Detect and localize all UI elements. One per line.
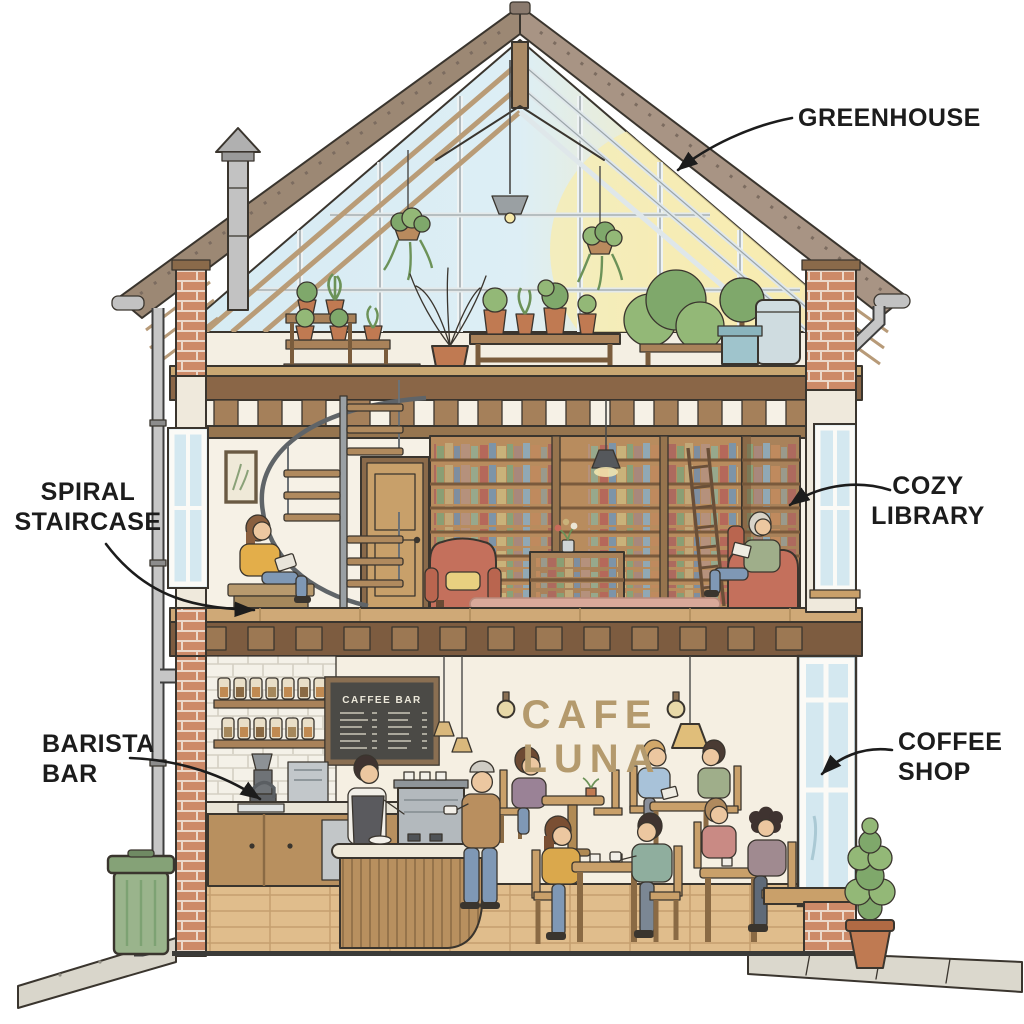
green-wheelie-bin xyxy=(108,850,174,954)
sink xyxy=(238,804,284,812)
wall-sign: CAFE LUNA xyxy=(522,693,662,781)
illustration-canvas: CAFFEE BAR xyxy=(0,0,1024,1024)
library-window-right xyxy=(810,424,860,598)
menu-board: CAFFEE BAR xyxy=(325,677,439,765)
label-spiral-2: STAIRCASE xyxy=(14,508,161,536)
label-barista-2: BAR xyxy=(42,760,98,788)
ground-line xyxy=(172,951,860,956)
wall-sign-line1: CAFE xyxy=(522,693,659,737)
floor-slab-lower xyxy=(170,608,862,656)
cafe-luna-cutaway: CAFFEE BAR xyxy=(0,0,1024,1024)
label-barista-1: BARISTA xyxy=(42,730,155,758)
label-greenhouse: GREENHOUSE xyxy=(798,104,981,132)
label-coffeeshop-2: SHOP xyxy=(898,758,971,786)
wall-sign-line2: LUNA xyxy=(522,737,661,781)
label-library-1: COZY xyxy=(892,472,963,500)
label-coffeeshop-1: COFFEE xyxy=(898,728,1002,756)
library-window-left xyxy=(168,428,208,588)
framed-picture xyxy=(226,452,256,502)
storefront-window xyxy=(798,656,856,906)
espresso-kettle-machine xyxy=(288,762,328,802)
label-spiral-1: SPIRAL xyxy=(41,478,136,506)
label-library-2: LIBRARY xyxy=(871,502,985,530)
menu-board-title: CAFFEE BAR xyxy=(342,695,421,706)
coffee-grinder xyxy=(252,754,272,770)
